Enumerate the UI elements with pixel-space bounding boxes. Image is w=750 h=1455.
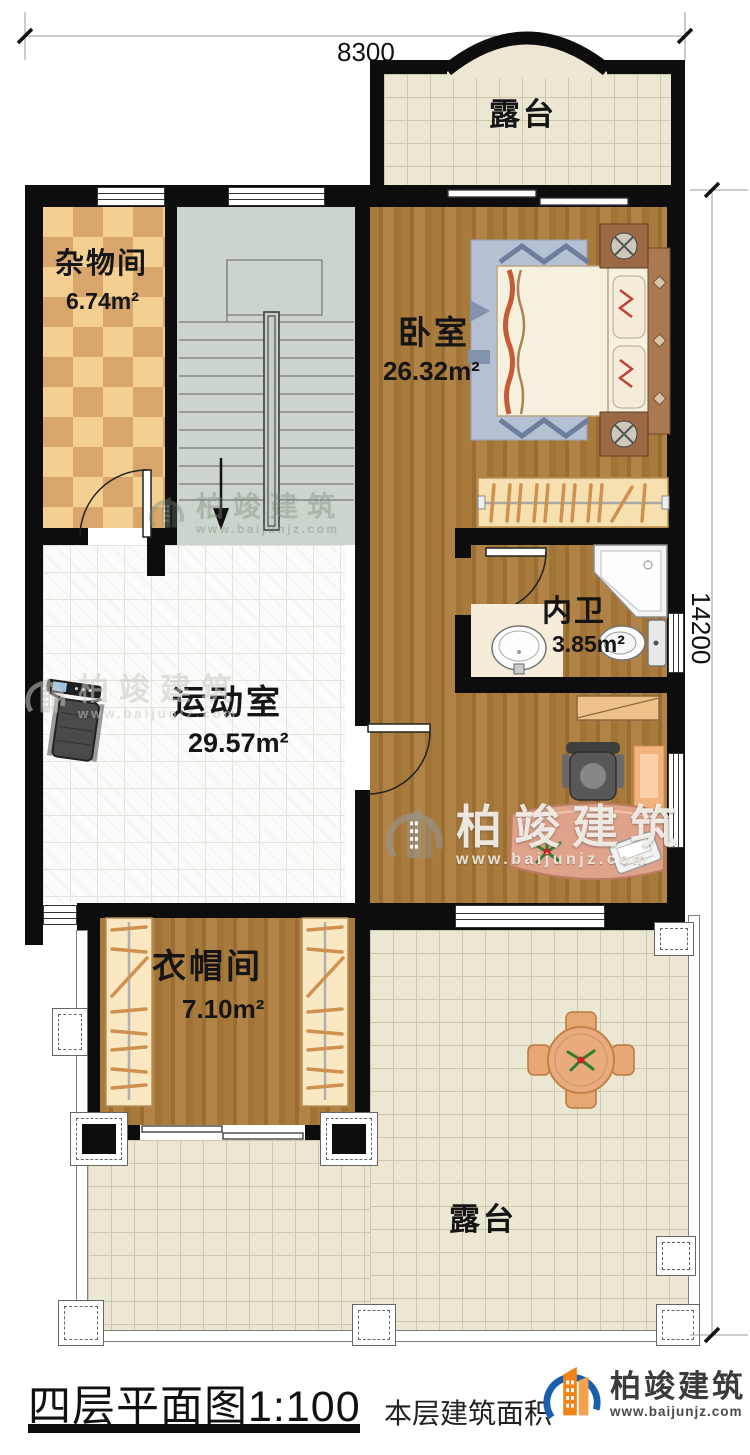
brand-logo-icon (540, 1358, 602, 1432)
pillar-right-mid (656, 1236, 696, 1276)
room-label-terrace-bottom: 露台 (449, 1204, 517, 1235)
pillar-cloakroom-right (320, 1112, 378, 1166)
pillar-bottom-mid (352, 1304, 396, 1346)
floor-area-note: 本层建筑面积 (384, 1392, 552, 1432)
wall-terrace-top-seg-right (600, 60, 685, 74)
room-label-storage: 杂物间 (55, 250, 148, 279)
pillar-bottom-left (58, 1300, 104, 1346)
pillar-bottom-right (656, 1304, 700, 1346)
floor-plan-canvas: 露台 杂物间 6.74m² 卧室 26.32m² 内卫 3.85m² 运动室 2… (0, 0, 750, 1455)
room-label-terrace-top: 露台 (489, 99, 557, 130)
pillar-cloakroom-left (70, 1112, 128, 1166)
terrace-bottom-floor-right (370, 930, 688, 1330)
wall-terrace-top-left-side (370, 60, 384, 185)
dimension-height: 14200 (688, 592, 714, 664)
wall-left-exterior (25, 185, 43, 918)
room-label-cloakroom: 衣帽间 (152, 950, 263, 984)
brand-logo-block: 柏竣建筑 www.baijunjz.com (540, 1358, 746, 1432)
room-area-storage: 6.74m² (66, 290, 139, 313)
window-study-bottom (455, 905, 605, 928)
wall-bathroom-top (455, 528, 685, 545)
plan-title-underline (28, 1424, 360, 1433)
brand-name: 柏竣建筑 (610, 1371, 746, 1402)
wall-bathroom-left-upper (455, 528, 471, 558)
pillar-left-mid (52, 1008, 88, 1056)
window-gym-bottom (43, 905, 77, 925)
window-study-right (668, 753, 684, 848)
window-top-storage (97, 187, 165, 206)
dimension-width: 8300 (337, 39, 395, 65)
terrace-bottom-floor-left (88, 1140, 370, 1330)
terrace-arch-wall (447, 38, 607, 78)
room-label-bedroom: 卧室 (398, 316, 470, 349)
pillar-right-top (654, 922, 694, 956)
brand-site: www.baijunjz.com (610, 1405, 746, 1419)
railing-right (688, 915, 700, 1342)
staircase-floor (177, 207, 355, 545)
room-area-bathroom: 3.85m² (552, 633, 625, 656)
wall-stairs-bedroom-upper (355, 207, 370, 726)
wall-stairs-bedroom-lower (355, 790, 370, 918)
wall-storage-stairs (165, 207, 177, 528)
sliding-door-cloakroom (142, 1126, 303, 1139)
wall-cloakroom-right (355, 918, 370, 1140)
wall-door-jamb-post (147, 528, 165, 576)
wall-top-right (370, 185, 685, 207)
room-area-gym: 29.57m² (188, 730, 289, 757)
room-label-bathroom: 内卫 (542, 597, 606, 627)
room-label-gym: 运动室 (172, 686, 283, 720)
wall-bathroom-bottom (455, 677, 685, 693)
window-top-stairs (228, 187, 325, 206)
window-bathroom-right (668, 613, 684, 673)
wall-gym-bottom (100, 903, 370, 918)
room-area-cloakroom: 7.10m² (182, 996, 264, 1022)
wall-storage-bottom-left (25, 528, 88, 545)
gym-floor (43, 545, 345, 903)
room-area-bedroom: 26.32m² (383, 358, 480, 384)
wall-gym-bottom-left-stub (25, 903, 43, 945)
wall-terrace-top-right-side (671, 60, 685, 185)
